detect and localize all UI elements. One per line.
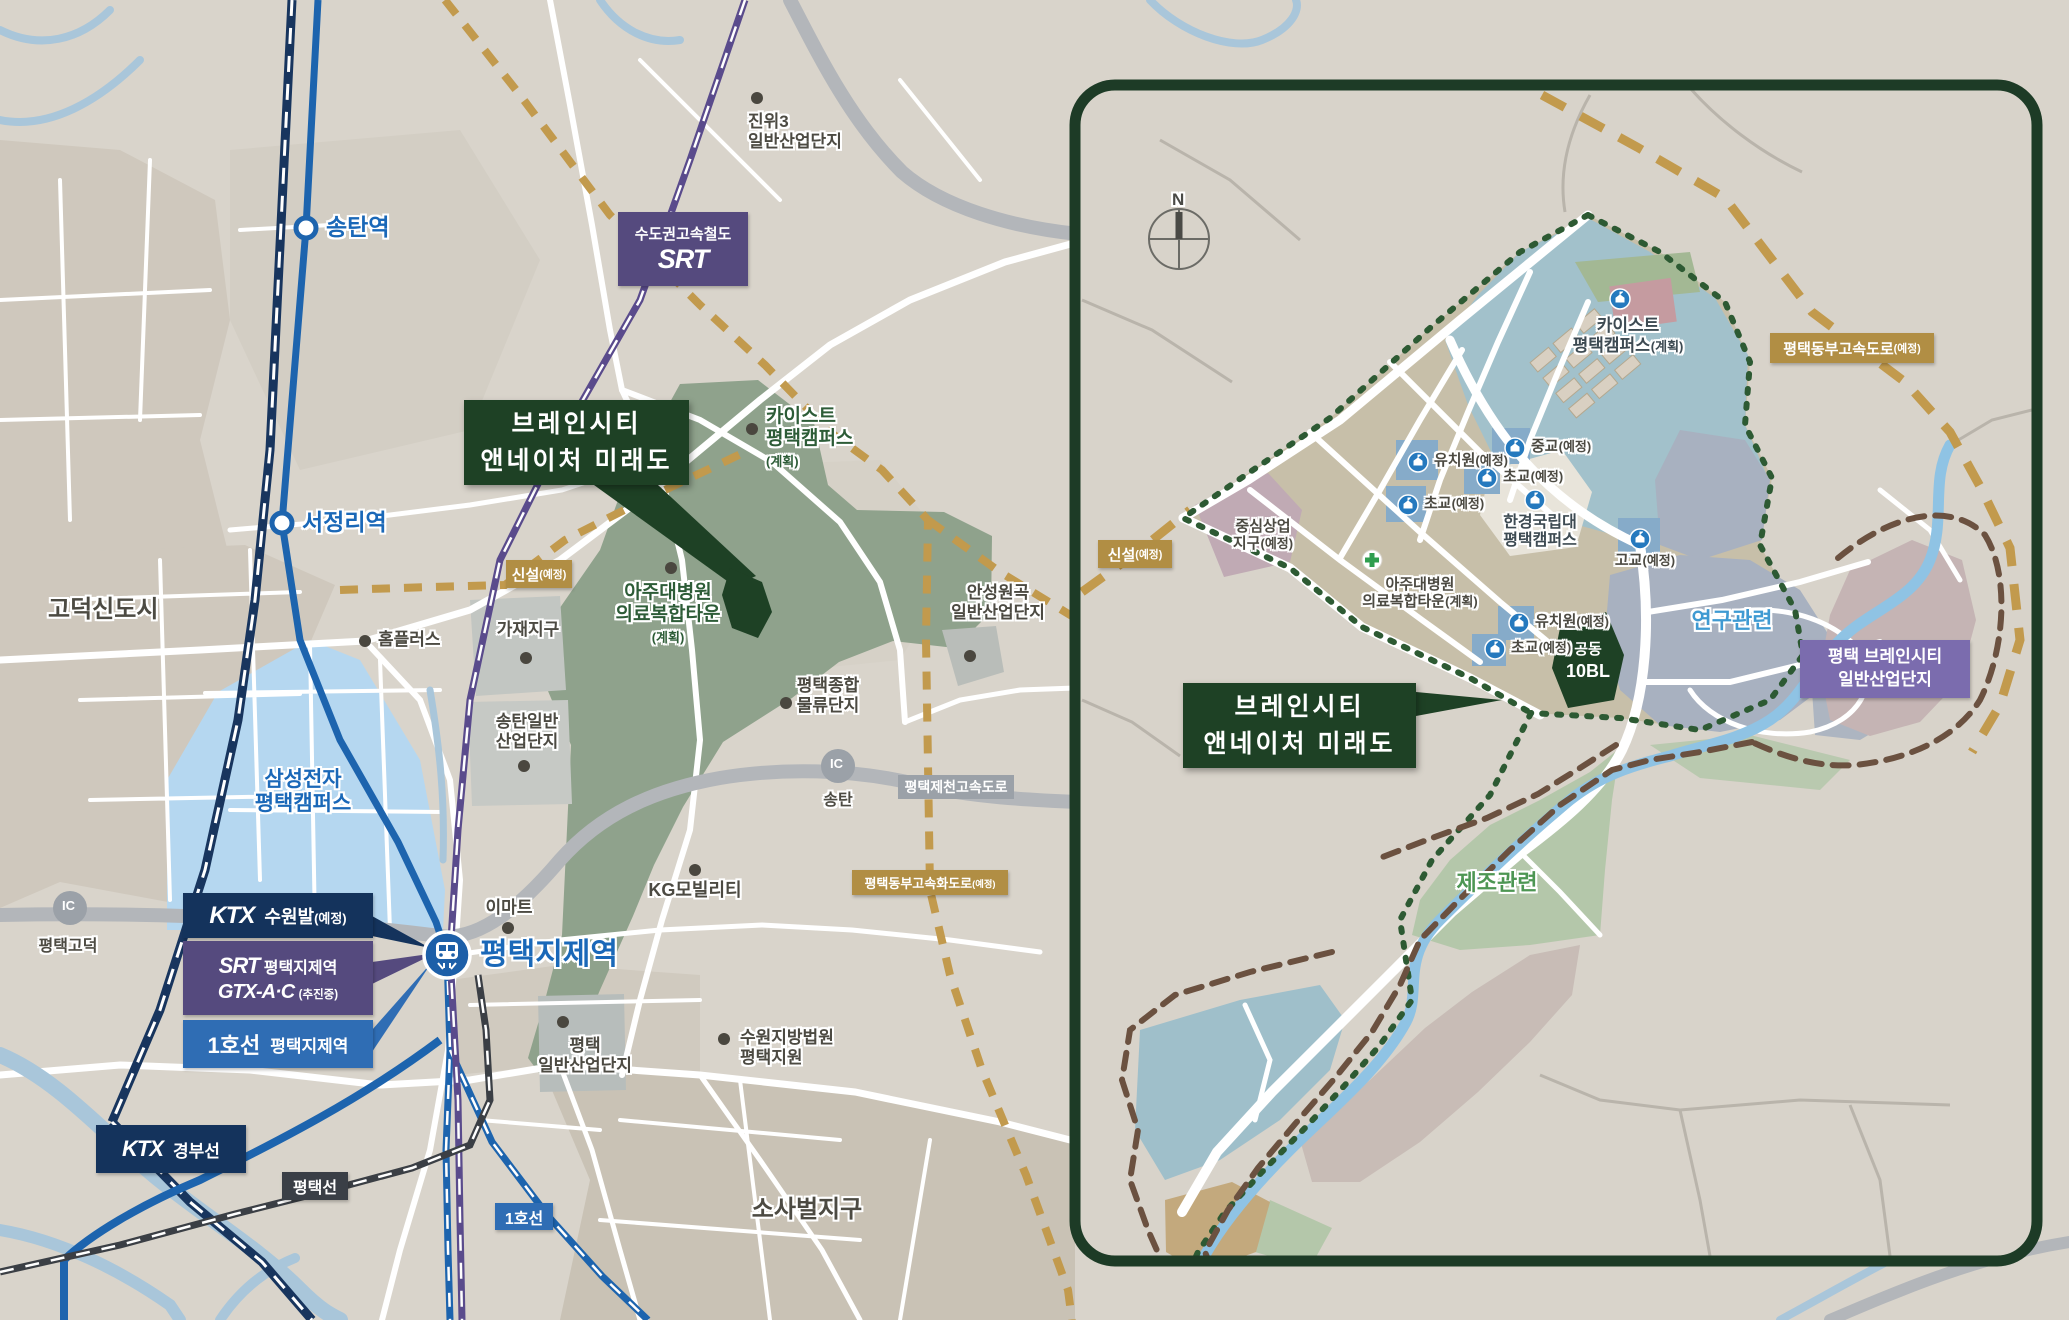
place-songtan-ind: 송탄일반산업단지: [496, 712, 559, 751]
inset-hankyong-label: 한경국립대평택캠퍼스: [1503, 514, 1577, 551]
inset-kinder1-label: 유치원(예정): [1434, 452, 1508, 469]
place-emart: 이마트: [486, 898, 533, 918]
braincity-callout-left: 브레인시티 앤네이처 미래도: [464, 400, 689, 485]
pyeongtaek-line-badge: 평택선: [282, 1172, 348, 1200]
place-jinwi3: 진위3일반산업단지: [748, 112, 842, 151]
east-expressway-badge-left: 평택동부고속화도로(예정): [852, 870, 1008, 895]
place-samsung: 삼성전자평택캠퍼스: [255, 768, 352, 816]
srt-line-badge: 수도권고속철도 SRT: [618, 212, 748, 286]
inset-high1-label: 고교(예정): [1615, 552, 1675, 569]
inset-site-block-label: 공동10BL: [1566, 640, 1610, 683]
inset-elem3-label: 초교(예정): [1511, 639, 1571, 656]
inset-commercial-label: 중심상업 지구(예정): [1233, 518, 1293, 553]
ktx-suwon-badge: KTX 수원발(예정): [183, 893, 373, 938]
ic-godeok-label: IC: [62, 899, 75, 914]
place-anseong: 안성원곡일반산업단지: [951, 583, 1045, 622]
jecheon-expressway-badge: 평택제천고속도로: [898, 775, 1014, 799]
place-pt-ind: 평택일반산업단지: [538, 1036, 632, 1075]
location-map: 송탄역 서정리역 수도권고속철도 SRT 진위3일반산업단지 브레인시티 앤네이…: [0, 0, 2069, 1320]
place-kaist: 카이스트 평택캠퍼스 (계획): [766, 406, 853, 472]
place-godeok-city: 고덕신도시: [48, 596, 158, 624]
inset-industrial-badge: 평택 브레인시티 일반산업단지: [1800, 640, 1970, 698]
compass-n-label: N: [1172, 190, 1184, 210]
ktx-gyeongbu-badge: KTX 경부선: [96, 1125, 246, 1173]
inset-highway-badge: 평택동부고속도로(예정): [1770, 333, 1934, 363]
inset-sinseol-badge: 신설(예정): [1098, 540, 1172, 568]
station-label-seojeongni: 서정리역: [302, 509, 387, 535]
inset-elem1-label: 초교(예정): [1424, 495, 1484, 512]
place-court: 수원지방법원평택지원: [740, 1028, 834, 1067]
ic-songtan-label: IC: [830, 757, 843, 772]
inset-mid1-label: 중교(예정): [1531, 438, 1591, 455]
place-kg: KG모빌리티: [648, 880, 741, 901]
station-label-jeje: 평택지제역: [480, 938, 618, 973]
place-logistics: 평택종합물류단지: [797, 676, 860, 715]
sinseol-badge-left: 신설(예정): [506, 560, 572, 588]
line1-jeje-badge: 1호선 평택지제역: [183, 1020, 373, 1068]
inset-kinder2-label: 유치원(예정): [1535, 613, 1609, 630]
map-artwork: [0, 0, 2069, 1320]
compass-icon: [1149, 209, 1209, 269]
place-gajae: 가재지구: [497, 620, 560, 640]
braincity-callout-inset: 브레인시티 앤네이처 미래도: [1183, 683, 1416, 768]
line1-badge: 1호선: [495, 1203, 553, 1230]
station-label-songtan: 송탄역: [326, 214, 389, 240]
place-ajou: 아주대병원 의료복합타운 (계획): [616, 582, 721, 648]
inset-manufacturing-label: 제조관련: [1457, 870, 1538, 895]
srt-gtx-badge: SRT 평택지제역 GTX-A·C (추진중): [183, 941, 373, 1015]
place-songtan-ic-name: 송탄: [823, 792, 852, 810]
jeje-station-icon: [424, 932, 470, 978]
inset-elem2-label: 초교(예정): [1503, 468, 1563, 485]
place-sosabeol: 소사벌지구: [752, 1196, 862, 1224]
inset-kaist-label: 카이스트 평택캠퍼스(계획): [1573, 316, 1684, 355]
inset-ajou-label: 아주대병원 의료복합타운(계획): [1362, 576, 1477, 611]
place-godeok-ic-name: 평택고덕: [39, 938, 98, 956]
place-homeplus: 홈플러스: [378, 630, 441, 650]
inset-research-label: 연구관련: [1692, 608, 1773, 633]
